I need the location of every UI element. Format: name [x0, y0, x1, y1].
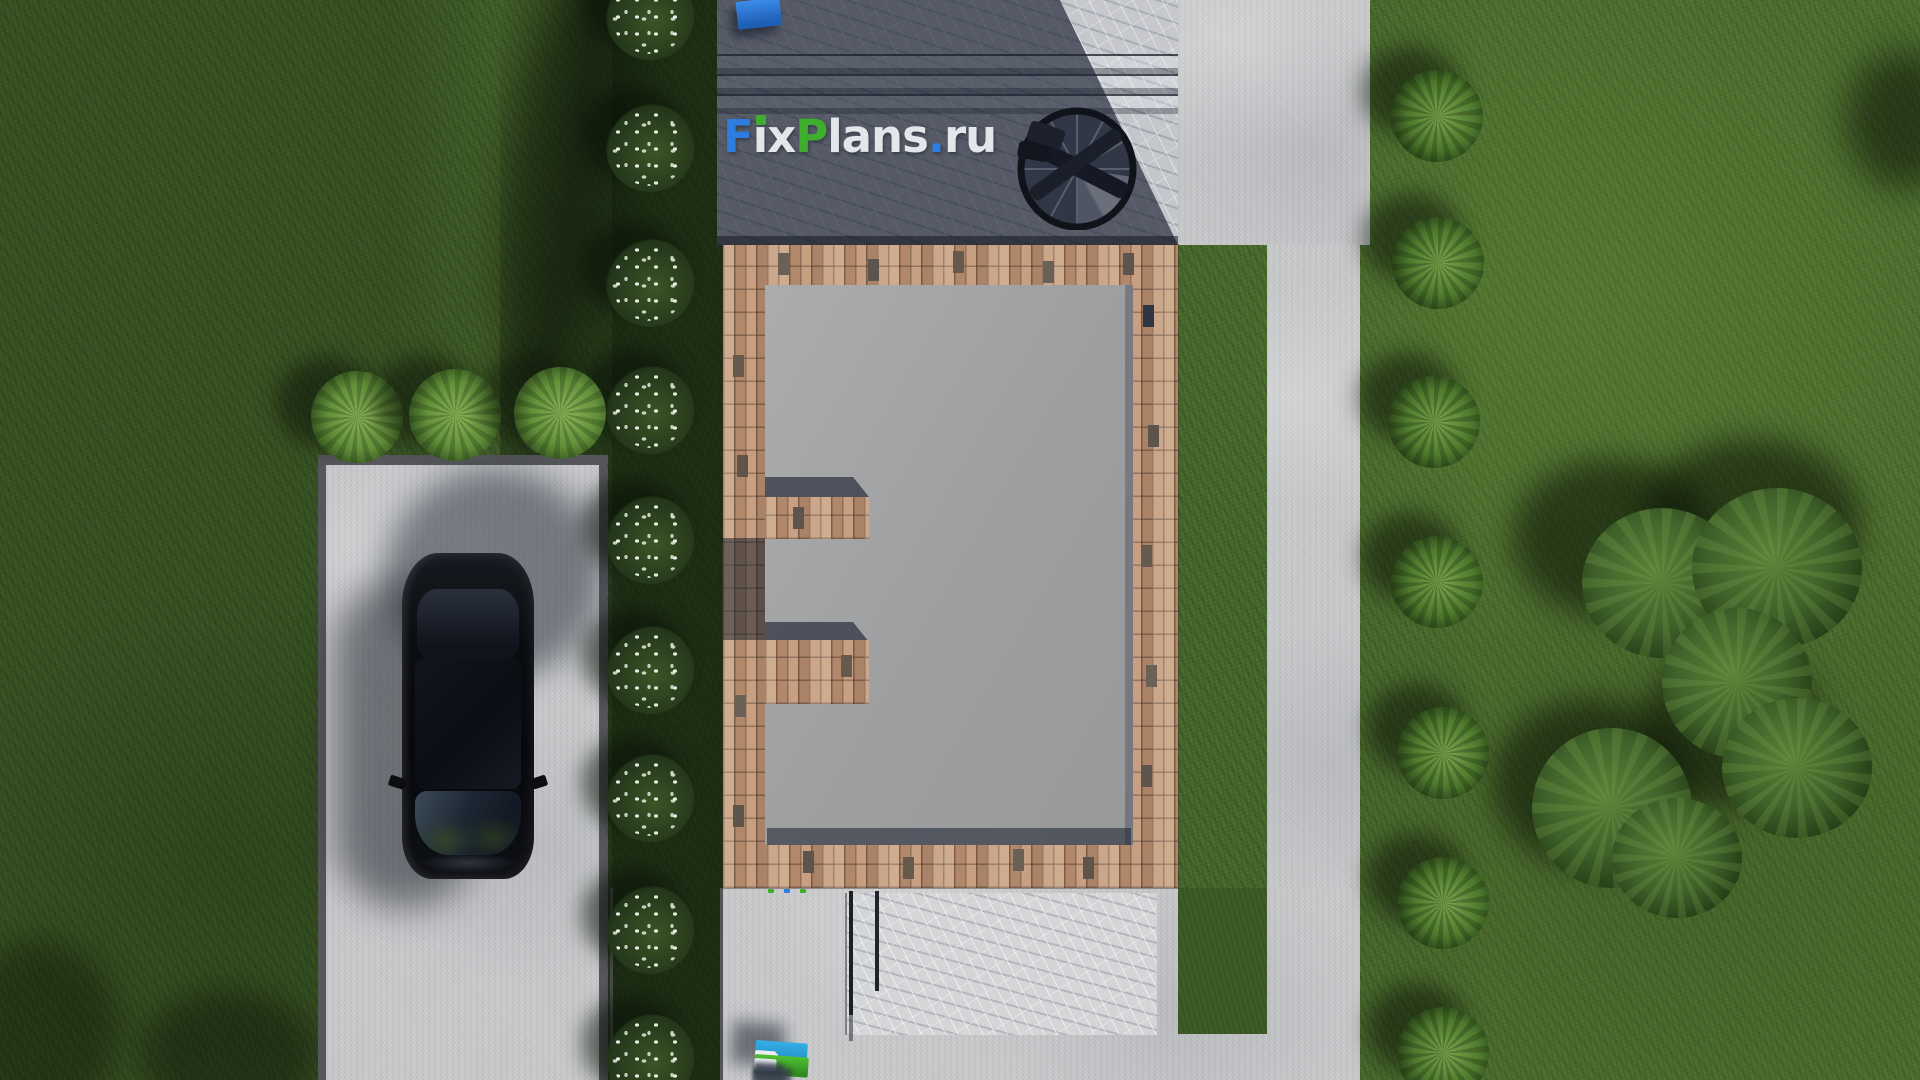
flower-bush	[606, 626, 694, 714]
brick-accents	[723, 245, 734, 267]
flower-bush	[606, 0, 694, 60]
tree-cluster	[1552, 498, 1832, 888]
round-shrub	[1391, 70, 1483, 162]
flower-bush	[606, 104, 694, 192]
fixplans-watermark: FixPlans.ru	[723, 110, 996, 166]
interior-wall-stub	[765, 640, 869, 704]
watermark-letter: s	[902, 110, 928, 163]
watermark-letter: P	[795, 110, 827, 163]
mini-sign-speck	[768, 889, 774, 893]
watermark-letter: a	[842, 110, 871, 163]
flower-bush	[606, 886, 694, 974]
shaded-wall-section	[723, 538, 765, 640]
terrace-apron	[1178, 0, 1370, 245]
wall-shadow-line	[717, 236, 1178, 245]
lawn-strip-right	[1178, 888, 1267, 1034]
round-shrub	[1388, 376, 1480, 468]
wall-stub-shadow	[765, 622, 869, 642]
house-walls	[723, 245, 1178, 888]
flower-bush	[606, 754, 694, 842]
post-shadow-line	[849, 891, 853, 1015]
round-shrub	[1397, 1007, 1489, 1080]
curb-line	[720, 888, 723, 1080]
round-shrub	[1397, 857, 1489, 949]
watermark-letter: u	[965, 110, 996, 163]
interior-floor	[765, 285, 1133, 845]
interior-wall-shadow	[1125, 285, 1133, 845]
round-shrub	[1397, 707, 1489, 799]
green-bush	[514, 367, 606, 459]
wall-stub-shadow	[765, 477, 869, 497]
mini-sign-speck	[800, 889, 806, 893]
car	[402, 553, 534, 879]
post-shadow-line	[849, 1015, 853, 1041]
car-hood-highlight	[420, 853, 516, 873]
watermark-letter: i	[753, 110, 767, 163]
interior-wall-shadow	[767, 828, 1131, 845]
tree-canopy	[1722, 698, 1872, 838]
watermark-letter: l	[827, 110, 841, 163]
flower-bush	[606, 239, 694, 327]
round-shrub	[1391, 536, 1483, 628]
mini-sign-speck	[784, 889, 790, 893]
watermark-letter: n	[871, 110, 902, 163]
post-shadow-line	[875, 891, 879, 991]
watermark-letter: r	[944, 110, 965, 163]
site-render: FixPlans.ru	[0, 0, 1920, 1080]
round-shrub	[1392, 217, 1484, 309]
watermark-letter: x	[767, 110, 795, 163]
watermark-letter: .	[928, 110, 944, 163]
car-windshield	[415, 791, 521, 855]
flower-bush	[606, 496, 694, 584]
car-rear-window	[417, 589, 519, 659]
marble-patio	[845, 893, 1157, 1035]
spiral-staircase	[1014, 105, 1139, 230]
watermark-letter: F	[723, 110, 753, 163]
flower-bush	[606, 1014, 694, 1080]
car-roof	[415, 659, 521, 789]
interior-wall-stub	[765, 497, 869, 539]
tree-canopy	[1612, 798, 1742, 918]
flower-bush	[606, 366, 694, 454]
